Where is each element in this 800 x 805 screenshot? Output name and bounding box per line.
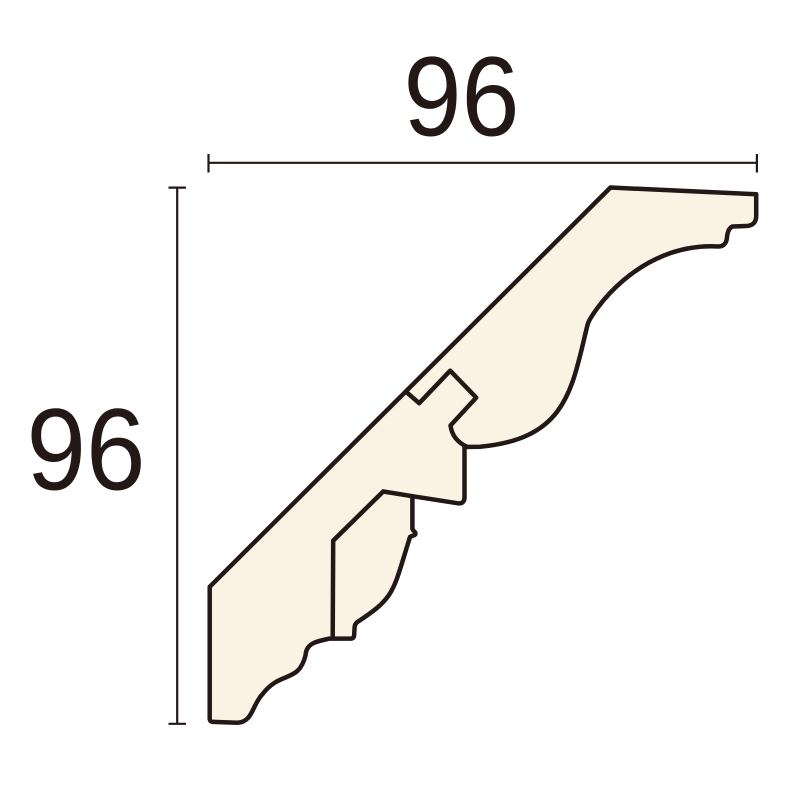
svg-text:96: 96	[404, 34, 520, 161]
svg-text:96: 96	[27, 385, 146, 515]
